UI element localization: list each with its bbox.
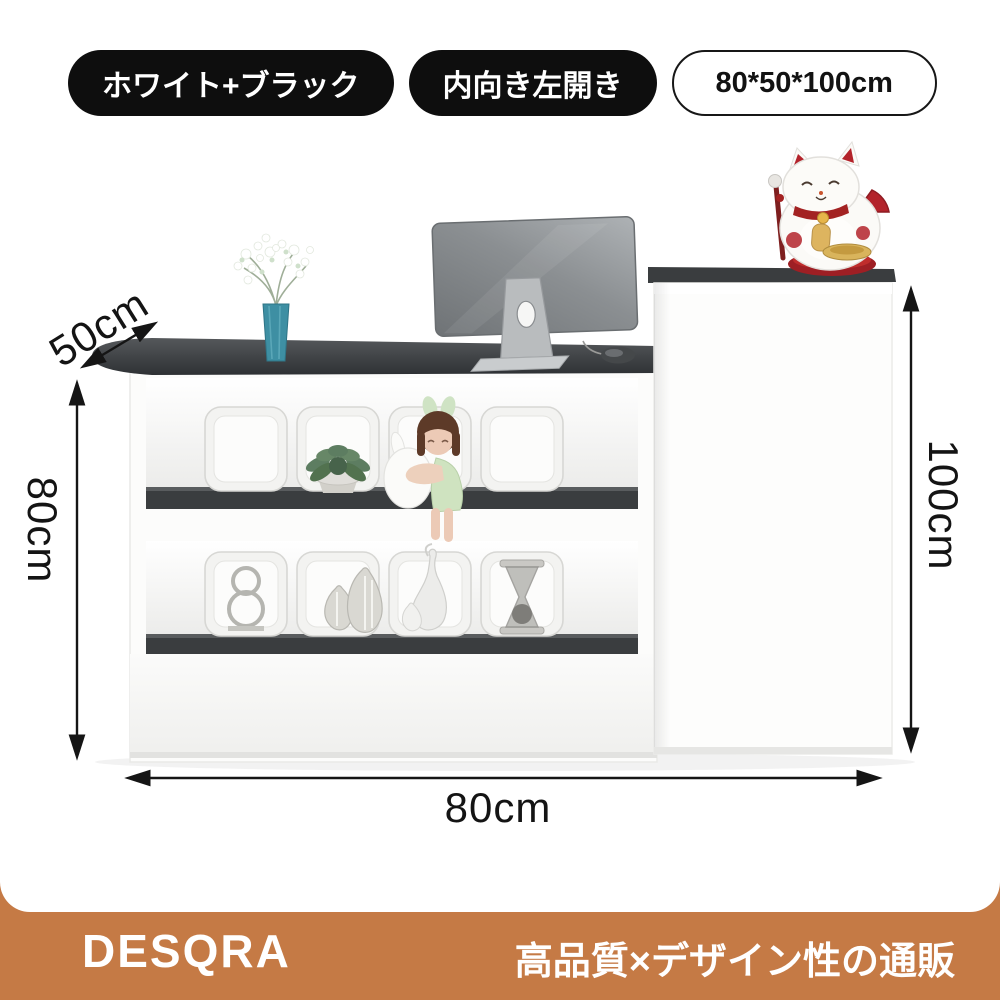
footer: DESQRA 高品質×デザイン性の通販 [0,880,1000,1000]
display-cube [481,407,563,491]
brand-logo-text: DESQRA [82,924,291,978]
footer-tagline: 高品質×デザイン性の通販 [515,930,955,985]
dimension-total-height-label: 100cm [921,434,965,576]
counter-top [92,338,656,375]
side-cabinet [648,267,896,754]
lucky-cat-figurine [769,142,890,276]
display-cube [205,407,287,491]
product-photo: 50cm 80cm 100cm 80cm [0,0,1000,1000]
content-rounded-corner [0,880,1000,912]
dimension-height-label: 80cm [20,460,64,600]
product-card: ホワイト+ブラック 内向き左開き 80*50*100cm [0,0,1000,1000]
reception-counter [130,372,657,762]
dimension-width-label: 80cm [428,786,568,830]
product-photo-drawing [0,0,1000,1000]
